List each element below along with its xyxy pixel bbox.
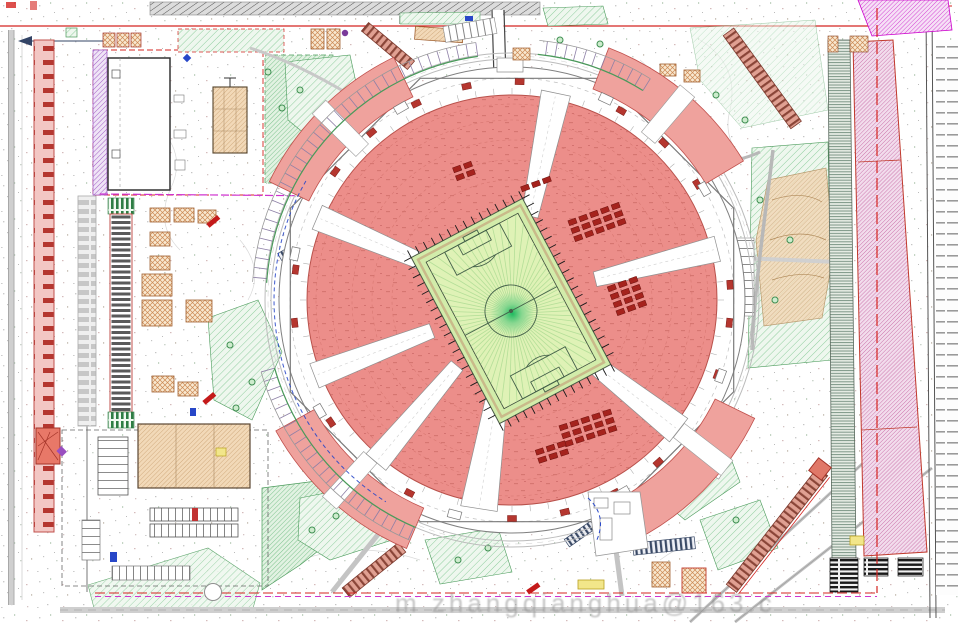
south-gate [588, 492, 648, 556]
magenta-zone [858, 0, 952, 36]
concourse-pad [508, 516, 517, 522]
linear-canopy [110, 214, 132, 412]
watermark: m zhangqianghua@163.c [395, 588, 960, 620]
warehouse-building [138, 424, 250, 488]
fence-hatch-west [93, 50, 107, 195]
office-building [213, 87, 247, 153]
bus-bay-block [830, 558, 858, 592]
concourse-pad [726, 318, 733, 328]
concourse-pad [727, 280, 734, 289]
survey-marker [205, 584, 222, 601]
stadium [253, 40, 759, 556]
roadside-stalls [936, 40, 958, 595]
site-plan-svg [0, 0, 960, 623]
concourse-pad [291, 318, 298, 328]
concourse-pad [515, 78, 524, 84]
east-parking-strips [828, 0, 958, 618]
site-plan-drawing: m zhangqianghua@163.c [0, 0, 960, 623]
concourse-pad [292, 265, 299, 275]
